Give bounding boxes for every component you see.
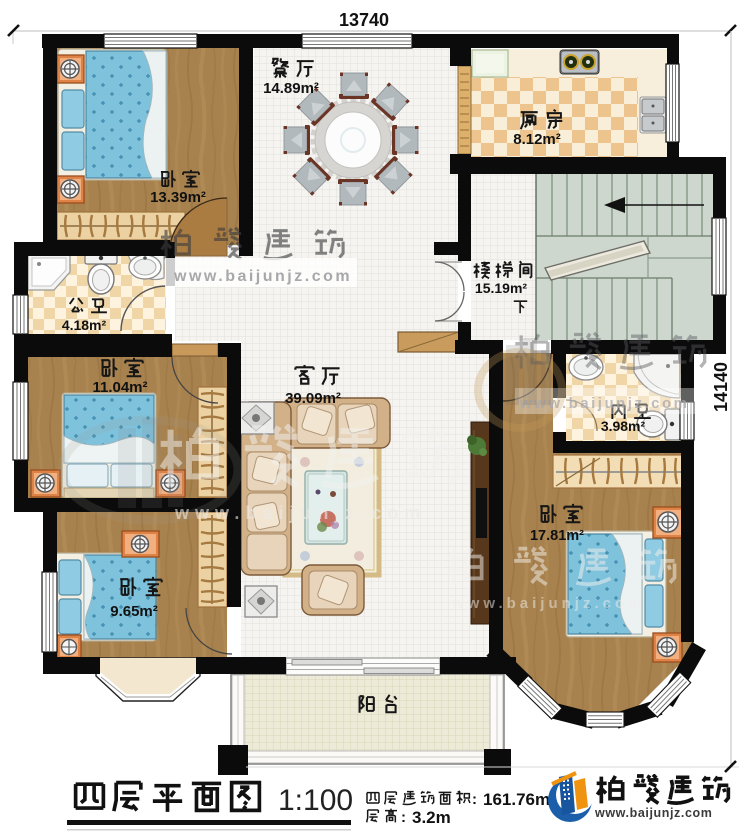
svg-text:13.39m²: 13.39m² bbox=[150, 189, 206, 206]
svg-text:17.81m²: 17.81m² bbox=[530, 528, 584, 544]
svg-text::: : bbox=[472, 791, 477, 808]
svg-text:161.76m²: 161.76m² bbox=[483, 790, 556, 809]
svg-text:www.baijunjz.com: www.baijunjz.com bbox=[174, 503, 426, 523]
svg-text:9.65m²: 9.65m² bbox=[110, 603, 158, 620]
svg-text:39.09m²: 39.09m² bbox=[285, 390, 341, 407]
svg-text:1:100: 1:100 bbox=[278, 784, 353, 817]
svg-text:14.89m²: 14.89m² bbox=[263, 80, 319, 97]
svg-text:www.baijunjz.com: www.baijunjz.com bbox=[451, 595, 645, 612]
svg-text:www.baijunjz.com: www.baijunjz.com bbox=[173, 268, 352, 285]
svg-text:8.12m²: 8.12m² bbox=[513, 131, 561, 148]
svg-text:www.baijunjz.com: www.baijunjz.com bbox=[594, 806, 712, 820]
svg-text:14140: 14140 bbox=[711, 362, 731, 412]
svg-text:13740: 13740 bbox=[339, 10, 389, 30]
svg-text:3.2m: 3.2m bbox=[412, 808, 451, 827]
svg-text:15.19m²: 15.19m² bbox=[475, 280, 527, 296]
svg-text:11.04m²: 11.04m² bbox=[92, 379, 147, 396]
svg-text::: : bbox=[401, 809, 406, 826]
svg-text:3.98m²: 3.98m² bbox=[601, 418, 646, 434]
svg-text:4.18m²: 4.18m² bbox=[62, 317, 107, 333]
